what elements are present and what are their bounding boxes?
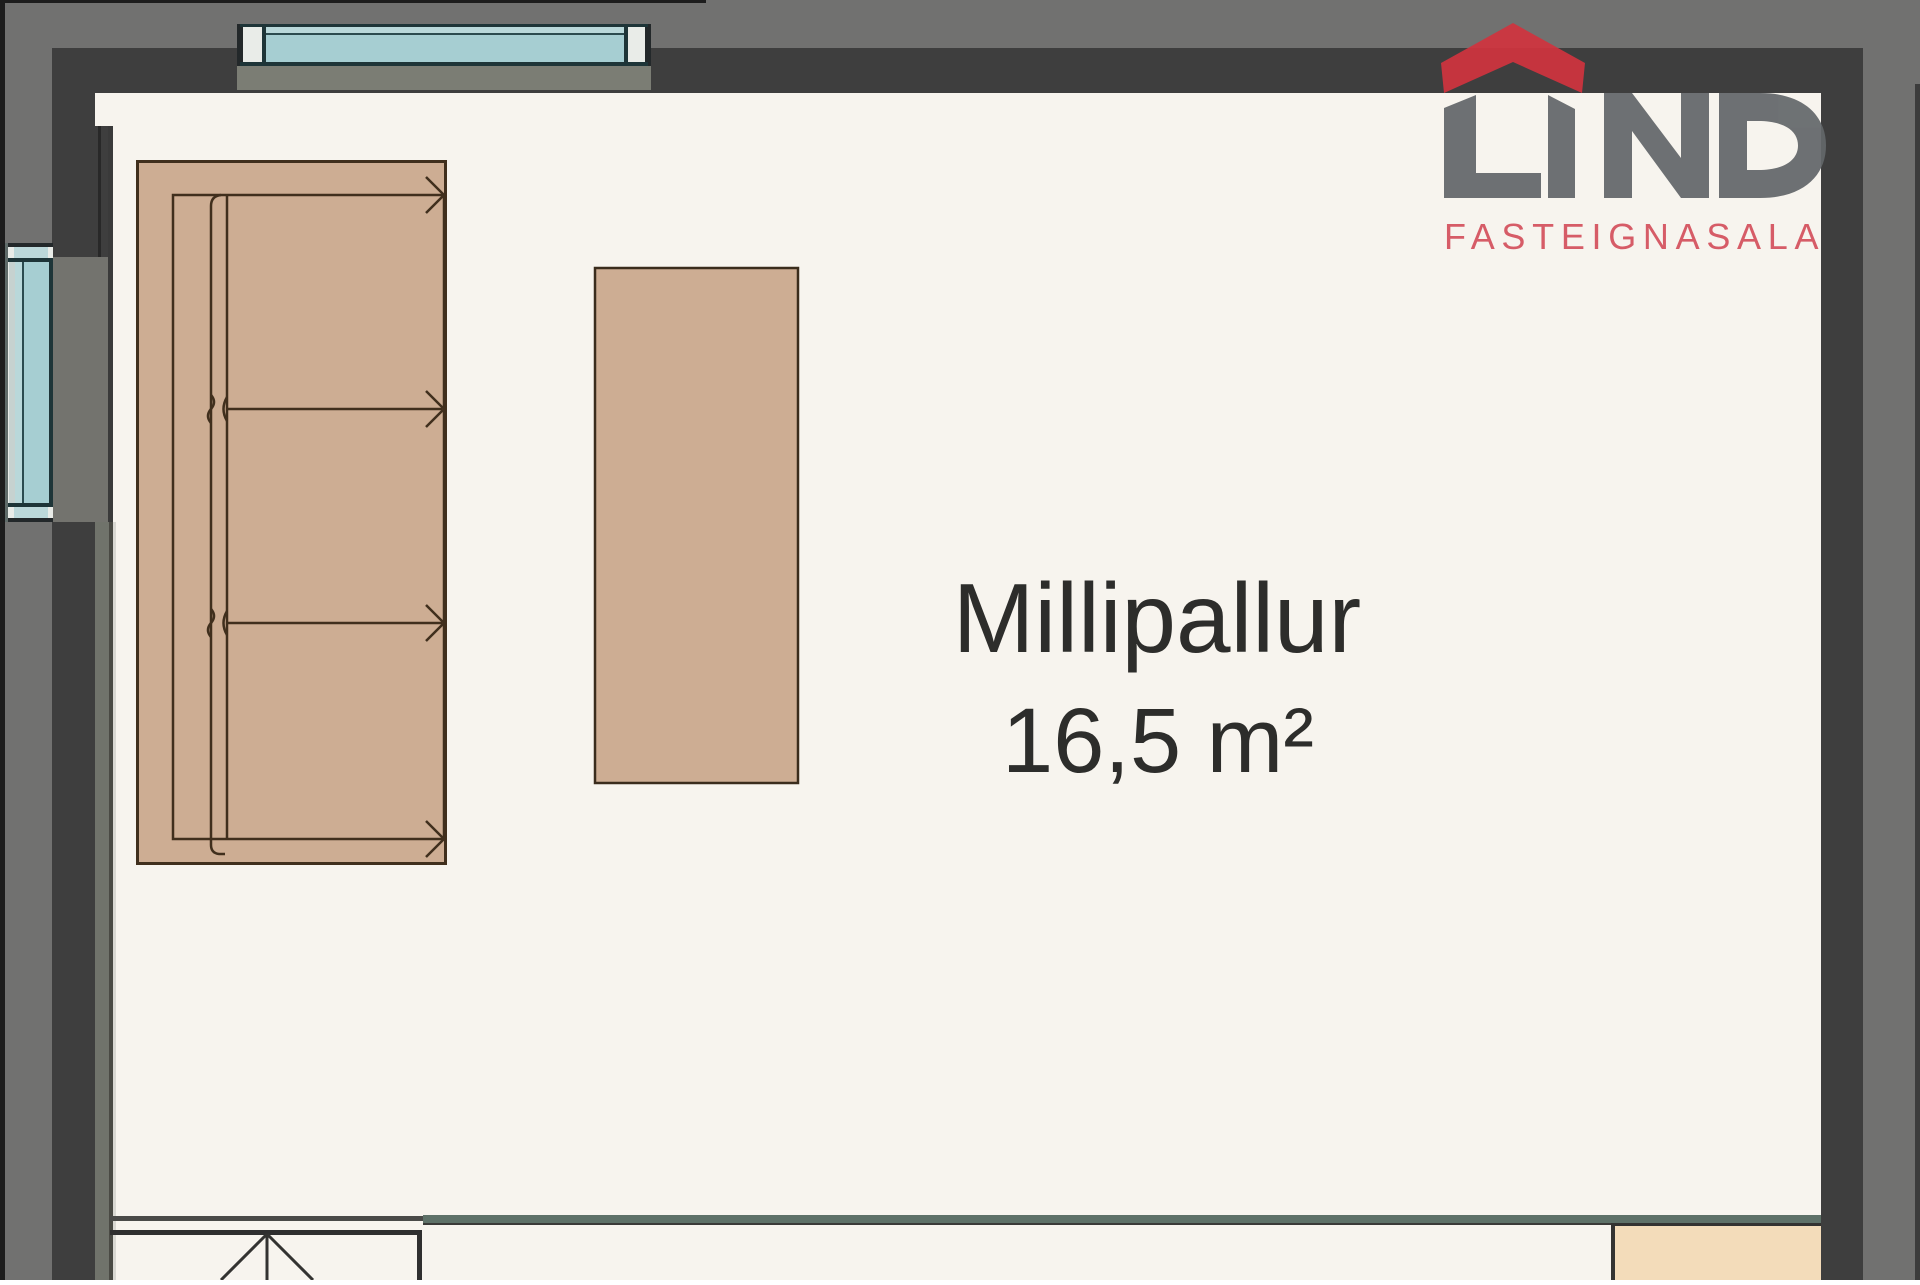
svg-text:16,5 m²: 16,5 m² [1002,690,1314,792]
svg-text:FASTEIGNASALA: FASTEIGNASALA [1444,216,1825,257]
svg-text:Millipallur: Millipallur [953,563,1361,673]
